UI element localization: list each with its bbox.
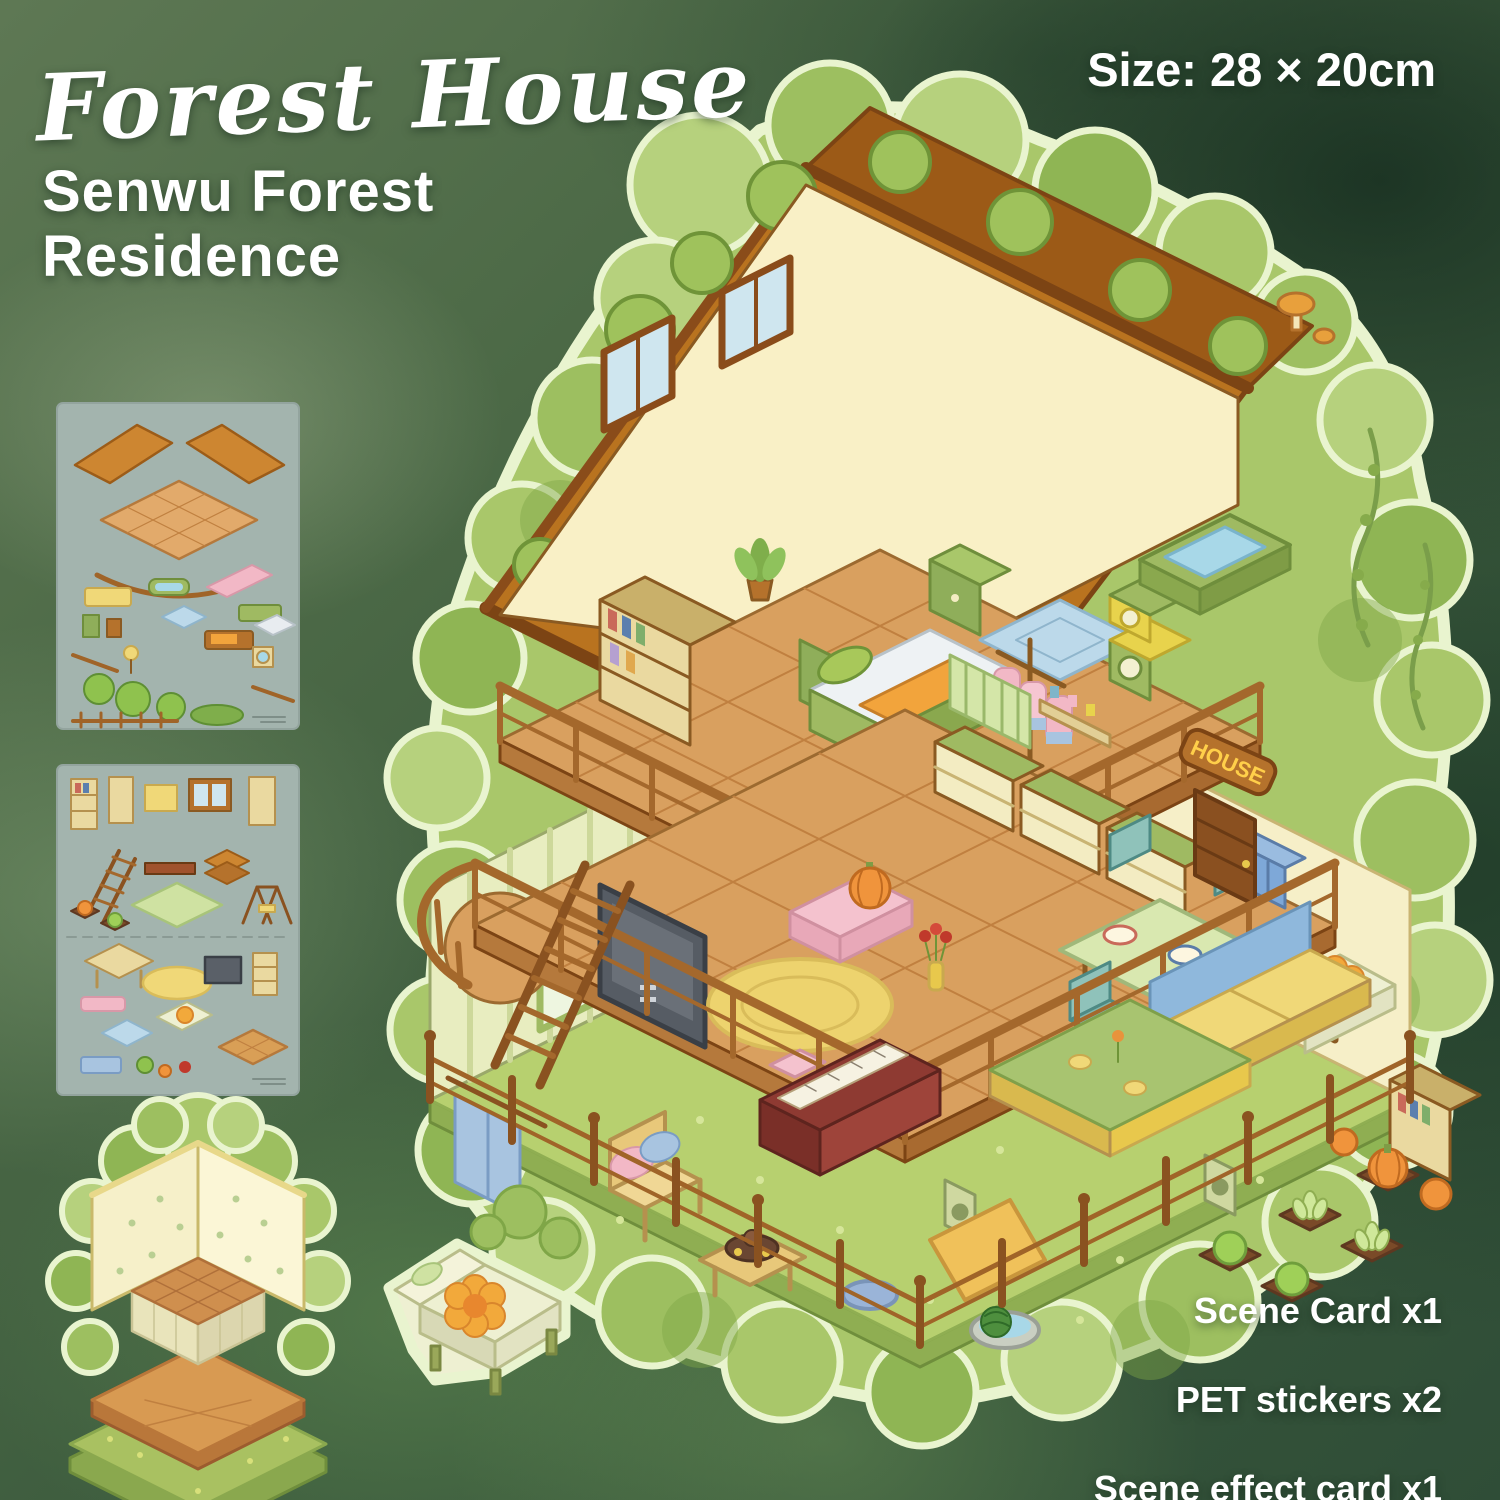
- subtitle-line-2: Residence: [42, 225, 434, 290]
- product-image: HOUSE: [0, 0, 1500, 1500]
- contents-list: Scene Card x1 PET stickers x2 Scene effe…: [1094, 1290, 1442, 1500]
- contents-item: Scene effect card x1: [1094, 1468, 1442, 1500]
- sticker-sheet-2: [57, 765, 299, 1095]
- subtitle-line-1: Senwu Forest: [42, 160, 434, 225]
- sticker-sheet-1: [57, 403, 299, 729]
- contents-item: Scene Card x1: [1094, 1290, 1442, 1332]
- flower-cushion: [445, 1275, 505, 1337]
- scene-card: [48, 1095, 348, 1500]
- product-subtitle: Senwu Forest Residence: [42, 160, 434, 290]
- contents-item: PET stickers x2: [1094, 1379, 1442, 1421]
- size-label: Size: 28 × 20cm: [1087, 42, 1436, 97]
